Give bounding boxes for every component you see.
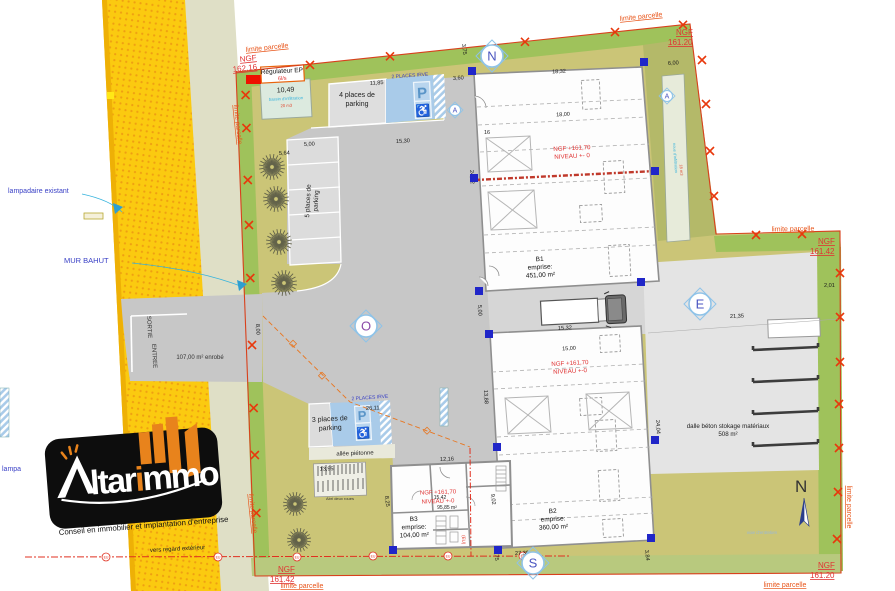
svg-text:parking: parking	[312, 190, 320, 212]
svg-text:2,01: 2,01	[824, 283, 835, 289]
svg-text:EU: EU	[371, 555, 376, 559]
svg-text:NGF: NGF	[676, 28, 693, 37]
svg-text:15,00: 15,00	[562, 346, 576, 353]
svg-text:limite parcelle: limite parcelle	[764, 582, 807, 589]
svg-text:26,11: 26,11	[366, 405, 380, 412]
svg-text:24,04: 24,04	[654, 420, 661, 434]
svg-text:8,00: 8,00	[254, 324, 261, 335]
svg-text:B2: B2	[549, 508, 558, 515]
svg-text:emprise:: emprise:	[401, 524, 426, 532]
svg-text:EU: EU	[216, 556, 221, 560]
svg-text:limite parcelle: limite parcelle	[281, 583, 324, 590]
svg-text:♿: ♿	[356, 427, 371, 441]
svg-text:107,00 m² enrobé: 107,00 m² enrobé	[176, 355, 224, 361]
svg-text:B3: B3	[410, 516, 419, 523]
svg-text:18 m3: 18 m3	[679, 164, 685, 176]
svg-text:A: A	[665, 94, 670, 101]
svg-text:3,84: 3,84	[643, 550, 650, 561]
svg-text:3,60: 3,60	[453, 75, 464, 82]
svg-text:lampadaire existant: lampadaire existant	[8, 188, 69, 195]
svg-text:NGF: NGF	[278, 565, 295, 574]
svg-text:5,00: 5,00	[304, 141, 315, 148]
svg-text:limite parcelle: limite parcelle	[772, 226, 815, 234]
svg-text:15,42: 15,42	[434, 495, 447, 501]
svg-text:P: P	[417, 85, 428, 103]
svg-text:161.42: 161.42	[270, 575, 295, 584]
svg-text:12,16: 12,16	[440, 457, 454, 463]
svg-text:95,85 m²: 95,85 m²	[437, 505, 457, 511]
svg-text:4 places de: 4 places de	[339, 92, 375, 99]
svg-text:508 m²: 508 m²	[718, 431, 737, 438]
svg-text:11,85: 11,85	[370, 80, 384, 87]
svg-text:voie d'entretien: voie d'entretien	[747, 530, 778, 535]
svg-text:MUR BAHUT: MUR BAHUT	[64, 256, 109, 265]
svg-text:NGF: NGF	[818, 237, 835, 246]
svg-text:16: 16	[484, 130, 490, 136]
svg-text:104,00 m²: 104,00 m²	[400, 531, 430, 539]
svg-text:15,32: 15,32	[558, 325, 572, 332]
svg-text:S: S	[529, 556, 538, 571]
svg-text:EU: EU	[104, 556, 109, 560]
svg-text:161.20: 161.20	[668, 38, 693, 47]
svg-text:21,35: 21,35	[730, 314, 744, 320]
svg-text:parking: parking	[319, 424, 342, 432]
svg-text:A: A	[453, 108, 458, 115]
svg-text:(EU): (EU)	[461, 535, 466, 545]
svg-text:161.20: 161.20	[810, 571, 835, 580]
svg-text:5,64: 5,64	[279, 150, 290, 157]
svg-text:N: N	[487, 49, 496, 64]
svg-text:5,00: 5,00	[476, 305, 483, 316]
svg-text:emprise:: emprise:	[540, 515, 565, 523]
svg-text:EU: EU	[295, 556, 300, 560]
svg-text:15,30: 15,30	[396, 138, 410, 145]
svg-text:♿: ♿	[415, 104, 431, 119]
svg-text:13,88: 13,88	[482, 390, 489, 404]
svg-text:EU: EU	[446, 555, 451, 559]
svg-text:O: O	[361, 319, 371, 334]
svg-text:20 m3: 20 m3	[280, 103, 293, 109]
svg-text:emprise:: emprise:	[527, 263, 552, 271]
svg-text:B1: B1	[536, 256, 545, 263]
svg-text:18,00: 18,00	[556, 112, 570, 119]
svg-text:N: N	[795, 477, 807, 496]
svg-text:18,32: 18,32	[552, 69, 566, 76]
svg-text:parking: parking	[346, 101, 369, 108]
svg-text:lampa: lampa	[2, 466, 21, 473]
svg-text:Abri deux roues: Abri deux roues	[326, 496, 354, 501]
svg-text:NGF: NGF	[818, 561, 835, 570]
svg-text:3,75: 3,75	[460, 44, 467, 55]
svg-text:8,25: 8,25	[383, 496, 390, 507]
svg-text:ENTREE: ENTREE	[150, 344, 157, 369]
svg-text:SORTIE: SORTIE	[145, 316, 152, 339]
svg-text:dalle béton stokage matériaux: dalle béton stokage matériaux	[687, 423, 770, 430]
svg-text:E: E	[696, 297, 705, 312]
svg-text:limite parcelle: limite parcelle	[845, 486, 852, 529]
svg-text:6l/s: 6l/s	[278, 76, 287, 82]
svg-text:6,00: 6,00	[668, 60, 679, 67]
svg-text:161.42: 161.42	[810, 247, 835, 256]
svg-text:9,02: 9,02	[489, 494, 496, 505]
svg-text:10,49: 10,49	[277, 87, 295, 95]
